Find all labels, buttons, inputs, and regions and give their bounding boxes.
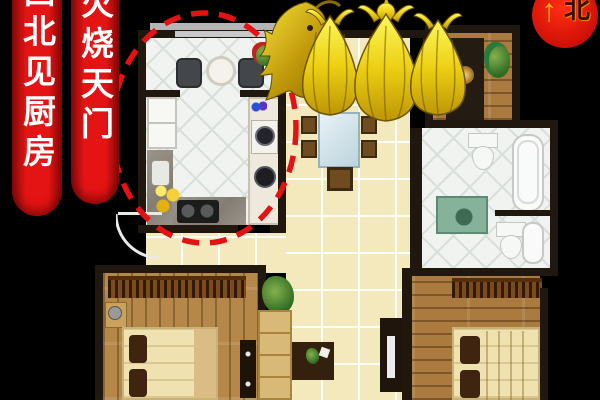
wall-bath-divider bbox=[495, 210, 550, 216]
towel bbox=[387, 336, 395, 378]
dining-chair bbox=[301, 140, 317, 158]
banner-text: 西北见厨房 bbox=[21, 0, 54, 216]
bathtub-inner bbox=[517, 140, 539, 204]
shower-tub bbox=[522, 222, 544, 264]
bed bbox=[452, 327, 540, 400]
living-room-plant bbox=[262, 276, 294, 314]
pillow bbox=[460, 336, 480, 364]
gold-blanket bbox=[486, 331, 532, 400]
golden-money-bag-icon bbox=[355, 0, 417, 121]
bedroom-door-leaf bbox=[240, 340, 256, 398]
table-plant bbox=[306, 348, 319, 364]
tv-cabinet bbox=[258, 310, 292, 400]
banner-fire-heaven-gate: 火烧天门 bbox=[71, 0, 119, 204]
bed bbox=[122, 327, 218, 400]
wall bbox=[540, 288, 548, 400]
compass-north-indicator: ↑ 北 bbox=[532, 0, 598, 48]
bathroom-vanity bbox=[436, 196, 488, 234]
pillow bbox=[460, 370, 480, 398]
wardrobe-sliding bbox=[108, 276, 246, 298]
pillow bbox=[129, 335, 147, 363]
wall bbox=[550, 128, 558, 275]
dining-chair bbox=[327, 167, 353, 191]
pillow bbox=[129, 369, 147, 397]
golden-money-bag-icon bbox=[411, 13, 466, 115]
wardrobe-sliding bbox=[452, 278, 542, 298]
wall bbox=[408, 268, 558, 276]
golden-dragon-and-money-bags bbox=[258, 0, 468, 124]
banner-text: 火烧天门 bbox=[79, 0, 112, 204]
nightstand-lamp bbox=[108, 306, 122, 320]
wall bbox=[512, 33, 520, 128]
wall bbox=[95, 273, 103, 400]
dining-chair bbox=[361, 140, 377, 158]
blanket-edge bbox=[194, 329, 216, 398]
wall bbox=[402, 268, 412, 400]
wall bbox=[410, 128, 422, 275]
banner-northwest-kitchen: 西北见厨房 bbox=[12, 0, 62, 216]
compass-north-label: 北 bbox=[564, 0, 590, 22]
wall bbox=[95, 265, 266, 273]
north-arrow-icon: ↑ bbox=[541, 0, 557, 26]
fengshui-poster: 西北见厨房 火烧天门 ↑ 北 bbox=[0, 0, 600, 400]
bedroom-plant bbox=[484, 42, 510, 78]
